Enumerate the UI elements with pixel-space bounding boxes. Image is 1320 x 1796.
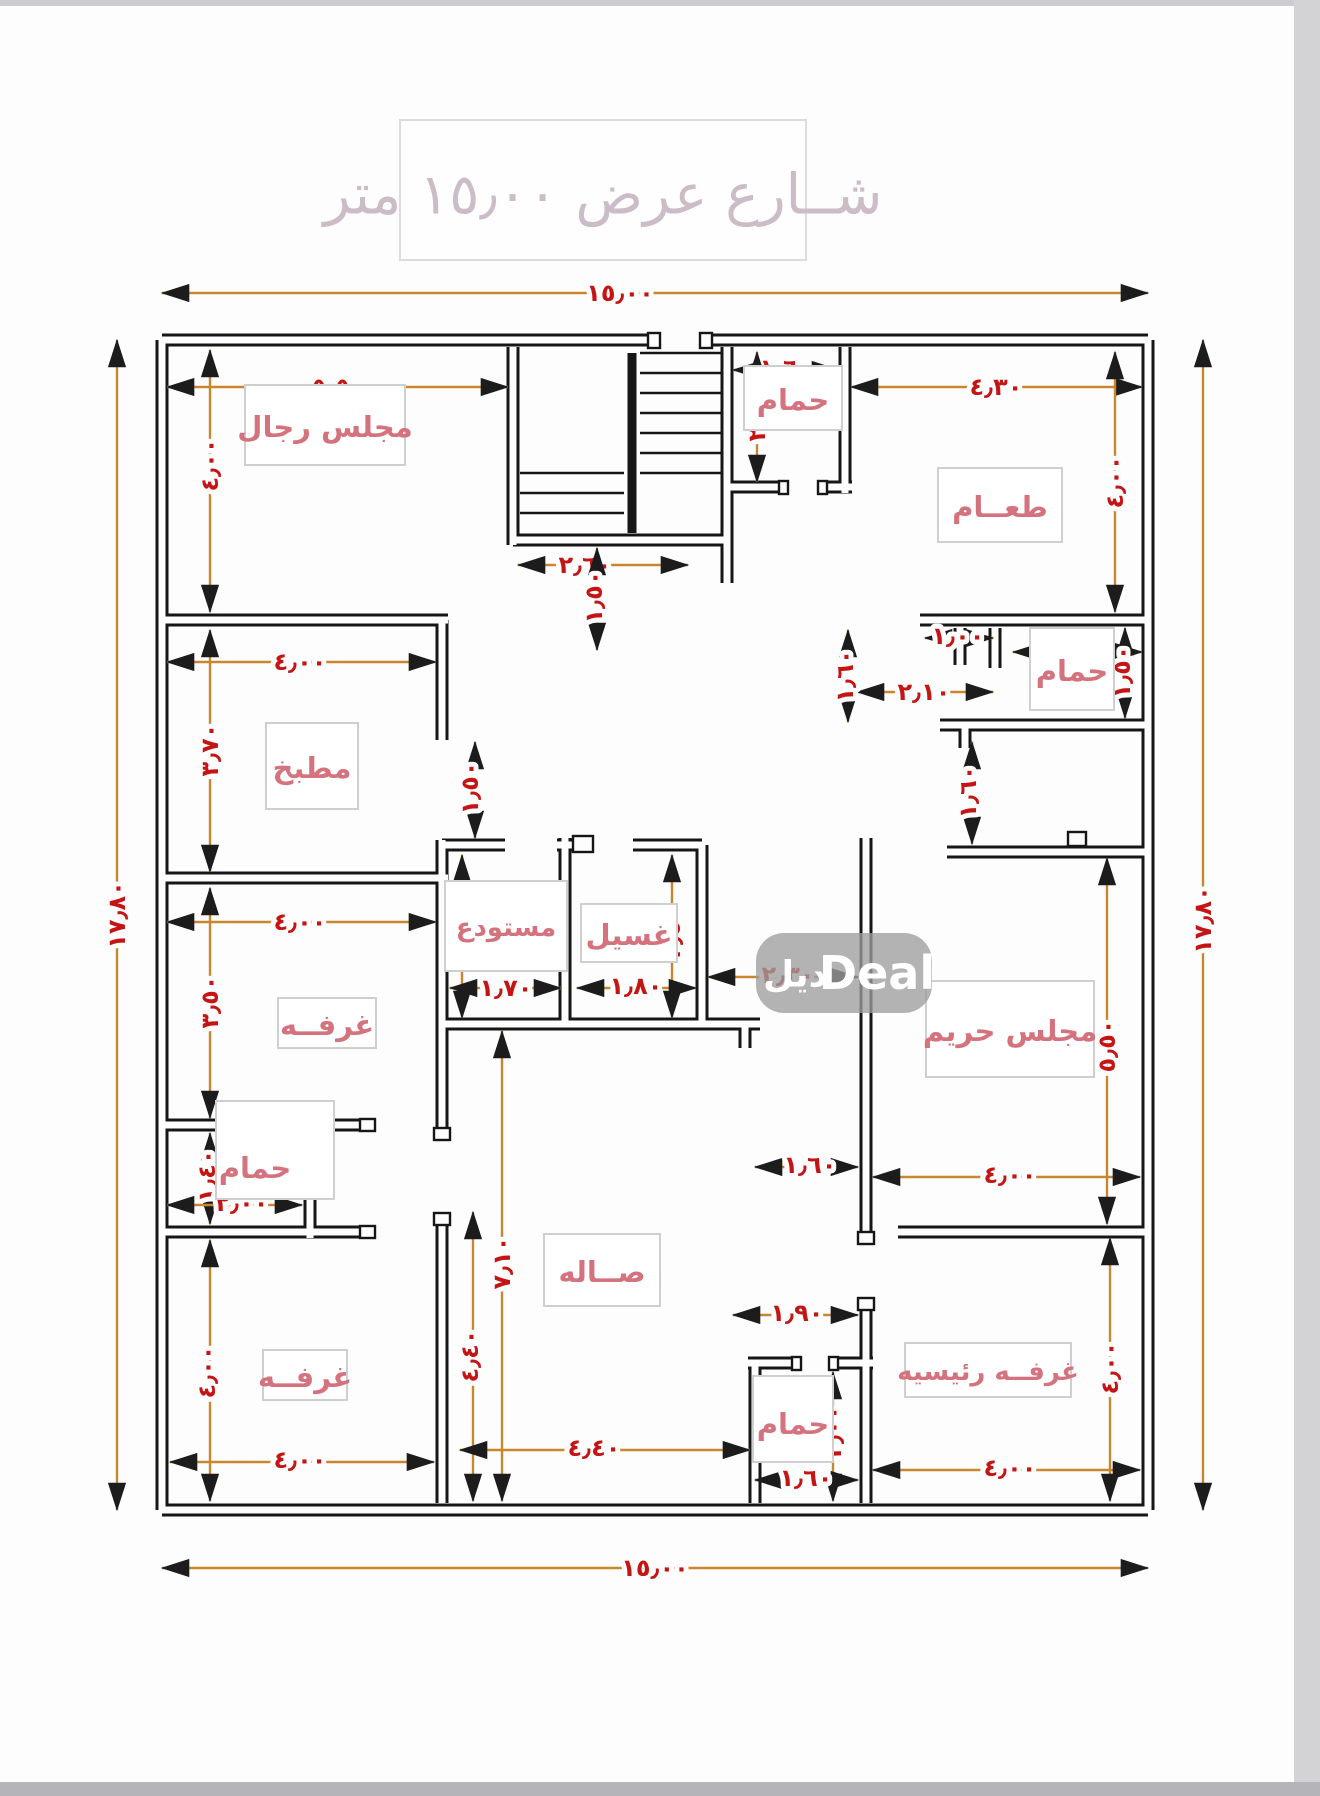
svg-text:مستودع: مستودع: [456, 913, 557, 943]
dimension-top-width: ١٥٫٠٠: [162, 279, 1148, 307]
watermark: ديل Deal: [756, 933, 935, 1013]
street-title-text: شــارع عرض ١٥٫٠٠ متر: [321, 163, 883, 228]
svg-text:٤٫٠٠: ٤٫٠٠: [984, 1454, 1037, 1482]
svg-text:١٫٨٠: ١٫٨٠: [610, 972, 663, 1000]
svg-text:٤٫٤٠: ٤٫٤٠: [568, 1434, 621, 1462]
room-label-hall: صــاله: [544, 1234, 660, 1306]
dim-label-bottom-width: ١٥٫٠٠: [621, 1554, 689, 1582]
svg-text:٣٫٥٠: ٣٫٥٠: [196, 976, 224, 1029]
svg-text:١٫٠٠: ١٫٠٠: [932, 622, 985, 650]
svg-text:مجلس حريم: مجلس حريم: [923, 1014, 1097, 1048]
svg-text:حمام: حمام: [1036, 654, 1109, 688]
stair-treads: [520, 353, 722, 513]
dimension-kitchen-height: ٣٫٧٠: [196, 630, 224, 872]
svg-text:غرفــه: غرفــه: [258, 1360, 352, 1394]
room-label-room-bottom: غرفــه: [258, 1350, 352, 1400]
dimension-kitchen-width: ٤٫٠٠: [167, 648, 436, 676]
room-label-majlis-rijal: مجلس رجال: [237, 385, 412, 465]
svg-text:غرفــه: غرفــه: [280, 1008, 374, 1042]
svg-text:٤٫٠٠: ٤٫٠٠: [1096, 1342, 1124, 1395]
watermark-arabic-text: ديل: [763, 955, 827, 996]
floor-plan-page: شــارع عرض ١٥٫٠٠ متر ١٥٫٠٠ ١٥٫٠٠: [0, 0, 1320, 1796]
room-label-storage: مستودع: [445, 881, 567, 971]
watermark-latin-text: Deal: [819, 946, 935, 1000]
photo-edge-right: [1294, 0, 1320, 1796]
dimension-dining-height: ٤٫٠٠: [1101, 352, 1129, 612]
dimension-hareem-door: ١٫٦٠: [954, 742, 982, 844]
svg-text:٢٫١٠: ٢٫١٠: [898, 678, 951, 706]
dimension-bath-right-passage: ٢٫١٠: [857, 678, 993, 706]
dimension-mid-door: ١٫٦٠: [831, 630, 859, 722]
svg-text:١٫٦٠: ١٫٦٠: [784, 1151, 837, 1179]
svg-text:حمام: حمام: [757, 383, 830, 417]
svg-text:٤٫٠٠: ٤٫٠٠: [274, 648, 327, 676]
room-label-dining: طعــام: [938, 468, 1062, 542]
svg-text:١٫٥٠: ١٫٥٠: [580, 571, 608, 624]
room-label-kitchen: مطبخ: [266, 723, 358, 809]
dimension-room-mid-width: ٤٫٠٠: [167, 908, 436, 936]
dimension-passage-160: ١٫٦٠: [755, 1151, 858, 1179]
room-label-bath-bottom: حمام: [753, 1376, 833, 1462]
dimension-hall-width: ٤٫٤٠: [460, 1434, 750, 1462]
dimension-hall-height: ٧٫١٠: [488, 1031, 516, 1501]
dimension-master-width: ٤٫٠٠: [873, 1454, 1140, 1482]
floor-plan-drawing: شــارع عرض ١٥٫٠٠ متر ١٥٫٠٠ ١٥٫٠٠: [0, 0, 1320, 1796]
svg-text:١٫٩٠: ١٫٩٠: [771, 1299, 824, 1327]
dim-label-top-width: ١٥٫٠٠: [586, 279, 654, 307]
svg-text:١٫٦٠: ١٫٦٠: [954, 766, 982, 819]
dimension-storage-door: ١٫٥٠: [456, 742, 484, 838]
dimension-hall-height-2: ٤٫٤٠: [456, 1212, 484, 1501]
street-title-box: شــارع عرض ١٥٫٠٠ متر: [321, 120, 883, 260]
dimension-majlis-height: ٤٫٠٠: [196, 350, 224, 612]
svg-text:٤٫٠٠: ٤٫٠٠: [196, 439, 224, 492]
svg-text:٤٫٠٠: ٤٫٠٠: [193, 1346, 221, 1399]
dimension-bath-bottom-width: ١٫٦٠: [755, 1464, 858, 1492]
dimension-bottom-width: ١٥٫٠٠: [162, 1554, 1148, 1582]
svg-text:١٫٦٠: ١٫٦٠: [780, 1464, 833, 1492]
svg-text:٤٫٣٠: ٤٫٣٠: [970, 373, 1023, 401]
dimension-dining-width: ٤٫٣٠: [851, 373, 1142, 401]
dimension-hareem-width: ٤٫٠٠: [873, 1161, 1140, 1189]
svg-text:٣٫٧٠: ٣٫٧٠: [196, 724, 224, 777]
svg-text:٤٫٠٠: ٤٫٠٠: [274, 1446, 327, 1474]
svg-text:صــاله: صــاله: [558, 1255, 645, 1289]
dimension-left-height: ١٧٫٨٠: [103, 340, 131, 1510]
dimension-storage-width: ١٫٧٠: [450, 974, 561, 1002]
svg-text:حمام: حمام: [757, 1407, 830, 1441]
dim-label-left-height: ١٧٫٨٠: [103, 881, 131, 949]
svg-text:مطبخ: مطبخ: [273, 751, 352, 785]
dimension-laundry-width: ١٫٨٠: [577, 972, 696, 1000]
photo-edge-bottom: [0, 1782, 1320, 1796]
svg-text:غرفــه رئيسيه: غرفــه رئيسيه: [897, 1357, 1079, 1387]
svg-text:حمام: حمام: [219, 1151, 292, 1185]
dim-label-right-height: ١٧٫٨٠: [1189, 886, 1217, 954]
room-label-bath-left: حمام: [216, 1101, 334, 1199]
svg-text:١٫٧٠: ١٫٧٠: [480, 974, 533, 1002]
svg-text:مجلس رجال: مجلس رجال: [237, 410, 412, 444]
svg-text:٧٫١٠: ٧٫١٠: [488, 1237, 516, 1290]
svg-text:طعــام: طعــام: [952, 490, 1048, 524]
svg-text:غسيل: غسيل: [585, 918, 672, 952]
dimension-passage-190: ١٫٩٠: [733, 1299, 858, 1327]
room-label-bath-right: حمام: [1030, 628, 1114, 710]
svg-text:١٫٦٠: ١٫٦٠: [831, 650, 859, 703]
room-label-master: غرفــه رئيسيه: [897, 1343, 1079, 1397]
staircase: [520, 353, 722, 533]
dimension-master-height: ٤٫٠٠: [1096, 1238, 1124, 1501]
svg-text:٤٫٠٠: ٤٫٠٠: [1101, 456, 1129, 509]
svg-text:١٫٥٠: ١٫٥٠: [456, 762, 484, 815]
room-label-bath-top: حمام: [744, 366, 842, 430]
svg-text:٤٫٤٠: ٤٫٤٠: [456, 1330, 484, 1383]
room-label-laundry: غسيل: [581, 904, 677, 962]
room-label-majlis-hareem: مجلس حريم: [923, 981, 1097, 1077]
photo-edge-top: [0, 0, 1320, 6]
svg-text:٤٫٠٠: ٤٫٠٠: [984, 1161, 1037, 1189]
dimension-hareem-height: ٥٫٥٠: [1093, 858, 1121, 1224]
dimension-right-height: ١٧٫٨٠: [1189, 340, 1217, 1510]
dimension-bath-right-door: ١٫٠٠: [925, 622, 993, 650]
svg-text:٥٫٥٠: ٥٫٥٠: [1093, 1020, 1121, 1073]
svg-text:٤٫٠٠: ٤٫٠٠: [274, 908, 327, 936]
room-label-room-mid: غرفــه: [278, 998, 376, 1048]
